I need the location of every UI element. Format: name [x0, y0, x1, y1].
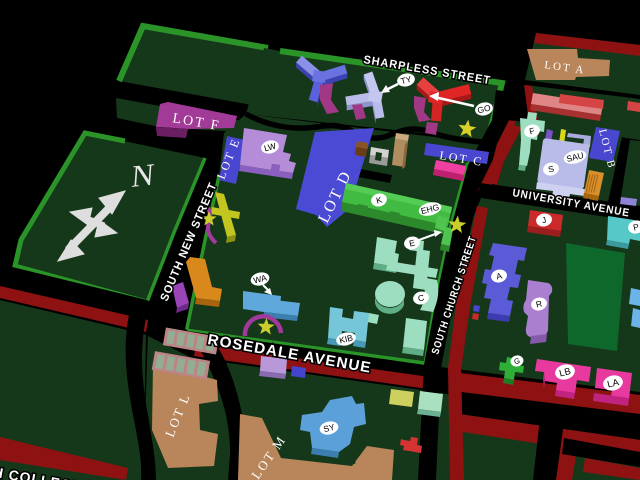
svg-text:N: N: [131, 157, 156, 195]
